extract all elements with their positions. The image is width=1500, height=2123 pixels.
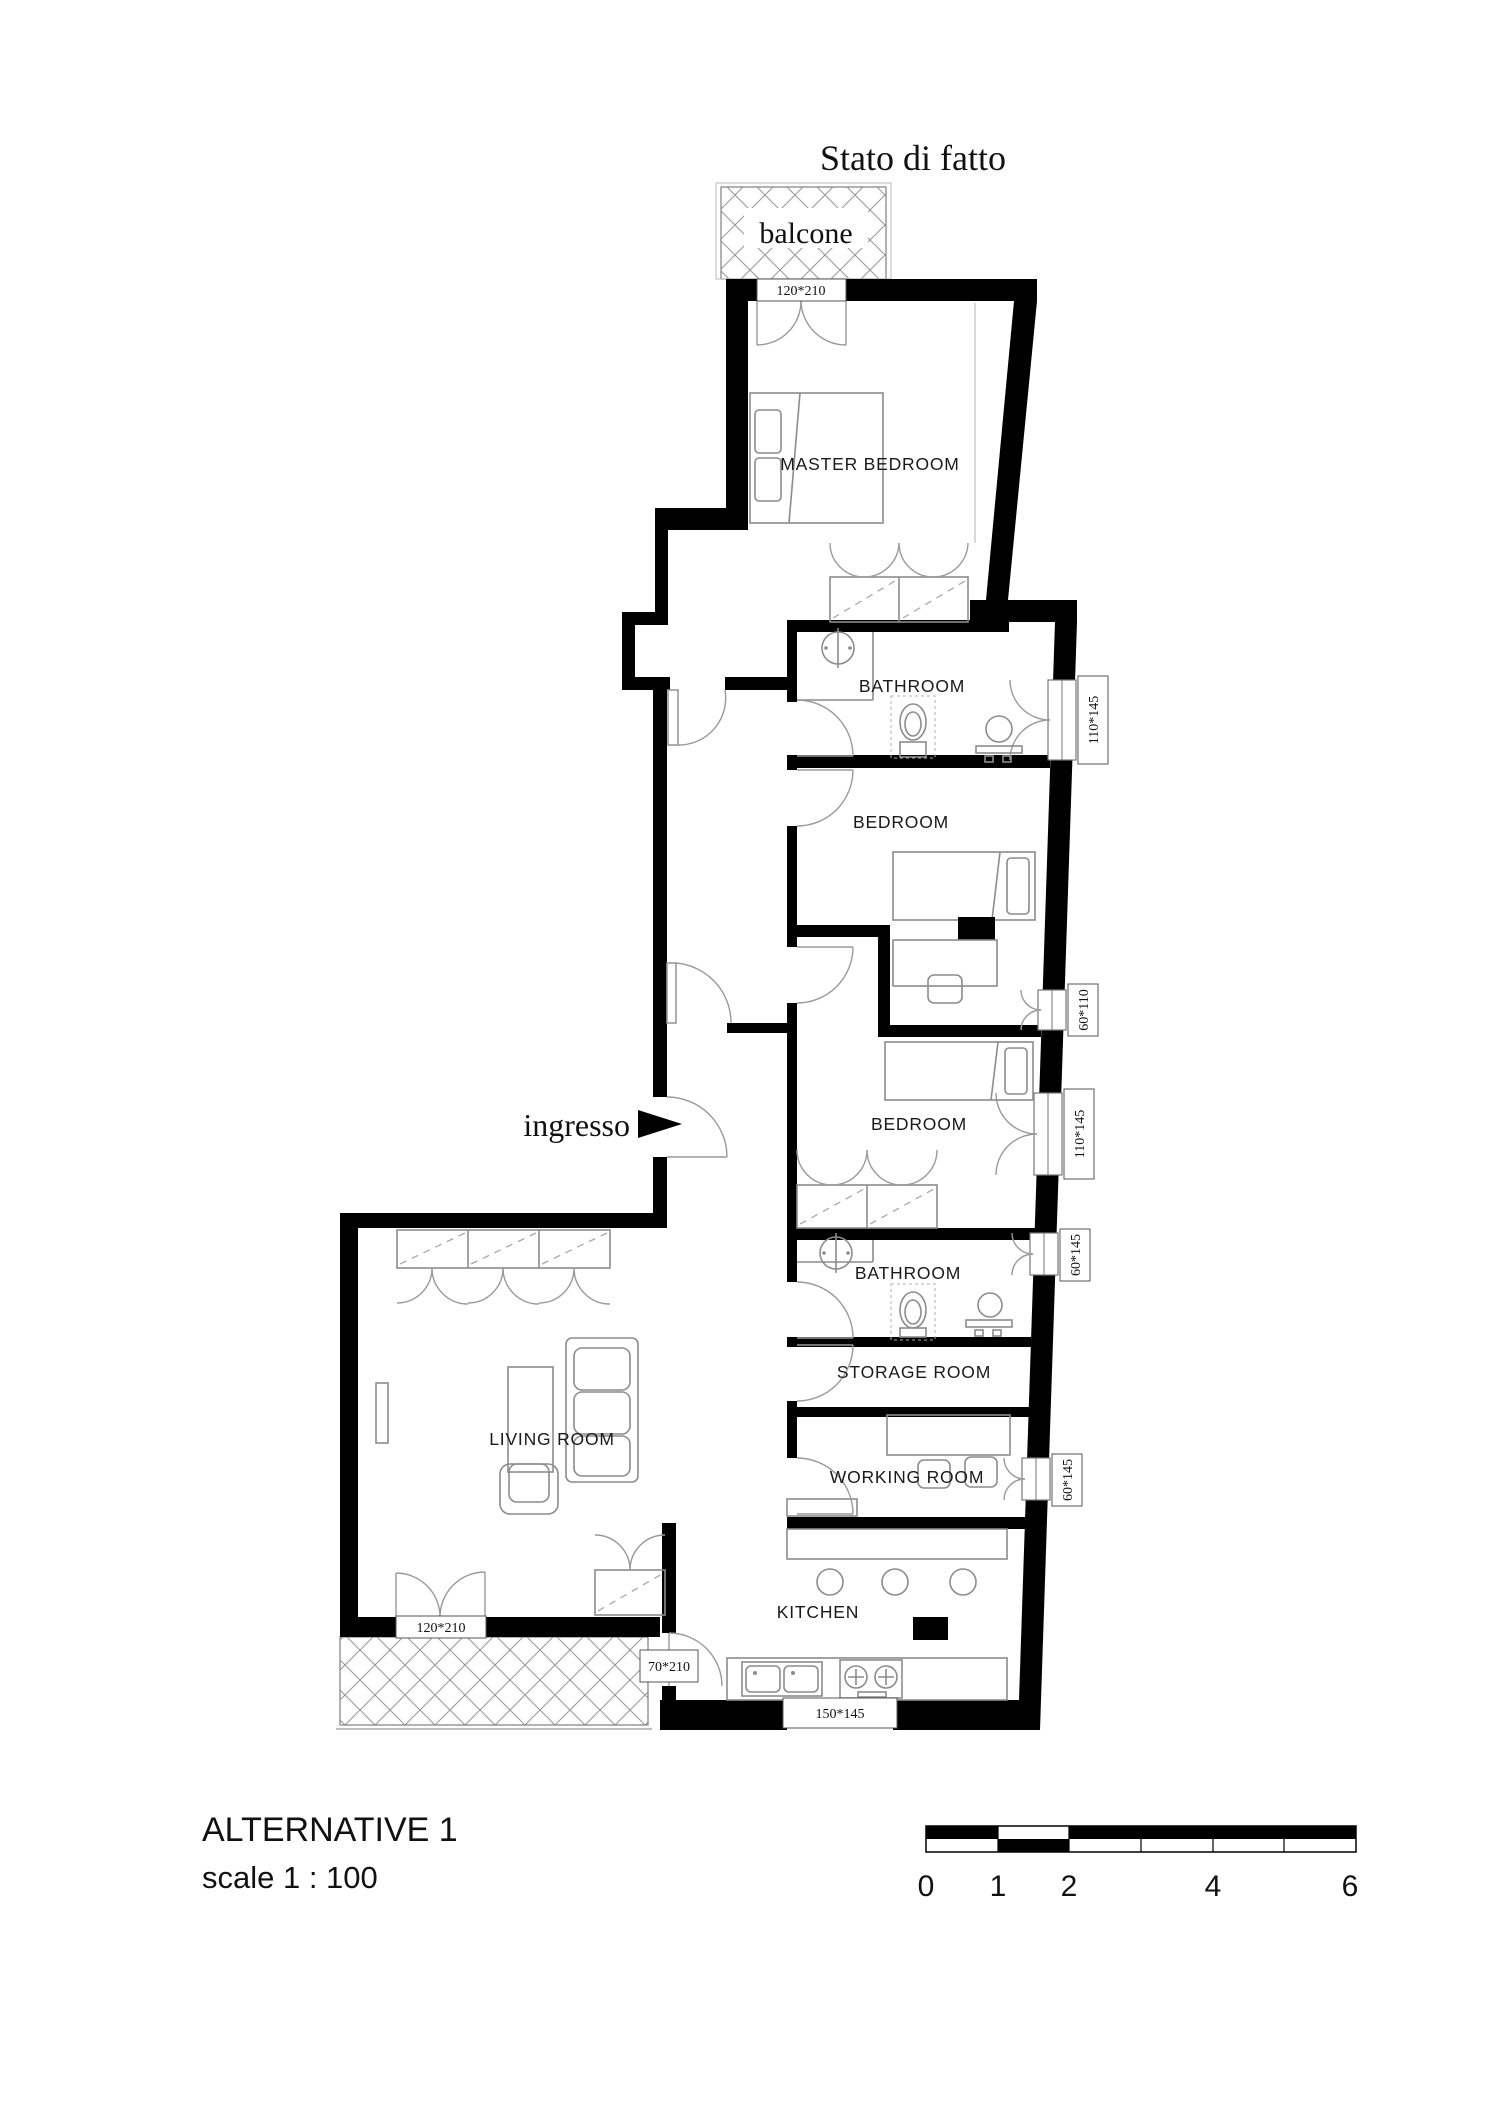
scalebar-tick-0: 0 xyxy=(918,1870,935,1903)
label-living-room: LIVING ROOM xyxy=(489,1429,614,1449)
dim-master-balcony-door: 120*210 xyxy=(777,284,826,299)
label-storage-room: STORAGE ROOM xyxy=(837,1362,991,1382)
bathroom2-fixtures xyxy=(797,1233,1012,1340)
label-bathroom-2: BATHROOM xyxy=(855,1263,961,1283)
dim-kitchen-window: 150*145 xyxy=(816,1707,865,1722)
label-bedroom-1: BEDROOM xyxy=(853,812,949,832)
scalebar-tick-1: 1 xyxy=(990,1870,1007,1903)
scale-label: scale 1 : 100 xyxy=(202,1860,378,1895)
doors xyxy=(396,301,853,1686)
entrance-label: ingresso xyxy=(523,1107,630,1143)
scale-bar: 0 1 2 4 6 xyxy=(918,1826,1359,1903)
entrance-arrow-icon xyxy=(638,1110,682,1138)
scalebar-tick-2: 2 xyxy=(1061,1870,1078,1903)
kitchen-furniture xyxy=(727,1529,1007,1700)
balcony-top: balcone xyxy=(716,183,891,279)
dim-bathroom1-window: 110*145 xyxy=(1087,696,1102,744)
dim-bedroom1-window: 60*110 xyxy=(1077,989,1092,1030)
dim-kitchen-balcony-door: 70*210 xyxy=(648,1660,690,1675)
label-kitchen: KITCHEN xyxy=(777,1602,859,1622)
dim-bedroom2-window: 110*145 xyxy=(1073,1110,1088,1158)
bedroom2-furniture xyxy=(797,1042,1033,1228)
dim-bathroom2-window: 60*145 xyxy=(1069,1234,1084,1276)
label-working-room: WORKING ROOM xyxy=(830,1467,984,1487)
living-room-furniture xyxy=(376,1230,665,1615)
bedroom1-furniture xyxy=(893,852,1035,1003)
working-room-furniture xyxy=(787,1415,1010,1516)
dim-working-window: 60*145 xyxy=(1061,1459,1076,1501)
balcony-top-label: balcone xyxy=(759,217,852,250)
variant-label: ALTERNATIVE 1 xyxy=(202,1811,458,1849)
scalebar-tick-6: 6 xyxy=(1342,1870,1359,1903)
label-master-bedroom: MASTER BEDROOM xyxy=(780,454,959,474)
footer: ALTERNATIVE 1 scale 1 : 100 0 1 2 4 6 xyxy=(202,1811,1358,1903)
floor-plan-page: Stato di fatto balcone xyxy=(0,0,1500,2123)
floor-plan-drawing: Stato di fatto balcone xyxy=(0,0,1500,2123)
walls xyxy=(340,279,1077,1730)
entrance-annotation: ingresso xyxy=(523,1107,682,1143)
label-bedroom-2: BEDROOM xyxy=(871,1114,967,1134)
page-title: Stato di fatto xyxy=(820,138,1006,178)
dim-living-balcony-door: 120*210 xyxy=(417,1621,466,1636)
label-bathroom-1: BATHROOM xyxy=(859,676,965,696)
scalebar-tick-4: 4 xyxy=(1205,1870,1222,1903)
balcony-bottom xyxy=(336,1637,652,1729)
